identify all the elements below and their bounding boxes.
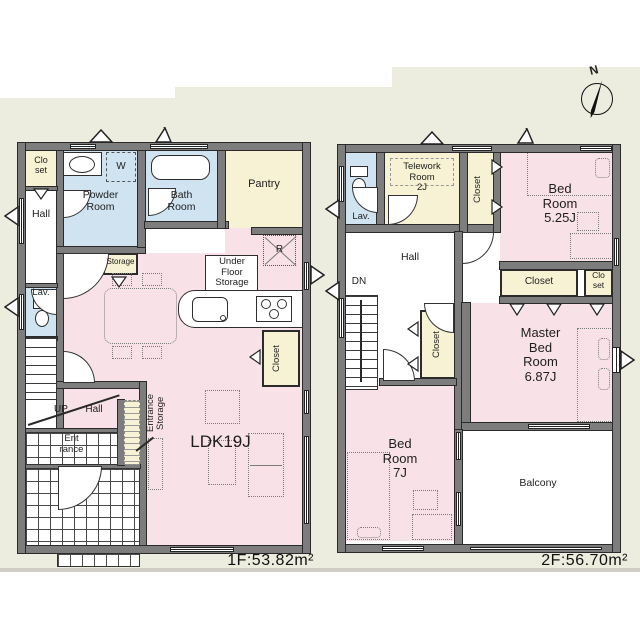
f1-bathtub — [151, 155, 210, 180]
floor-plan-page: { "colors": { "paper": "#ededdf", "wall"… — [0, 0, 640, 640]
f2-label-down: DN — [346, 276, 372, 287]
f2-label-closet-master-w: Closet — [432, 319, 442, 371]
f2-label-closet-master-n: Closet — [500, 276, 578, 287]
f2-toilet-tank — [350, 166, 368, 177]
f1-closet-east-door-icon — [248, 348, 262, 366]
f2-wall — [460, 152, 467, 232]
f1-label-closet-nw: Clo set — [25, 155, 57, 175]
f1-vent-icon — [152, 127, 174, 144]
f2-closet-door-icon — [508, 303, 526, 317]
f2-window — [452, 146, 492, 151]
f2-window — [614, 238, 619, 266]
f2-label-bedroom7: Bed Room 7J — [360, 437, 440, 481]
f2-wall — [377, 152, 384, 232]
f1-stairs — [25, 337, 57, 400]
f1-window — [304, 390, 309, 414]
f2-closet-door-icon — [490, 158, 504, 176]
f2-closet-door-icon — [545, 303, 563, 317]
f1-vent-icon — [309, 264, 325, 286]
f1-entrance-storage-shelf — [124, 400, 140, 465]
f1-vent-icon — [4, 205, 20, 227]
f2-window — [339, 166, 344, 202]
f1-dining-table — [104, 288, 177, 344]
f1-closet-door-icon — [32, 188, 50, 201]
paper-notch-mid — [175, 67, 392, 87]
f1-label-entrance-storage: Entrance Storage — [146, 378, 166, 448]
f2-vent-icon — [325, 280, 341, 302]
f1-burner — [269, 309, 279, 319]
f1-label-entrance: Ent rance — [25, 434, 118, 455]
f2-label-bedroom5: Bed Room 5.25J — [520, 182, 600, 226]
f2-label-closet-north: Closet — [473, 165, 483, 215]
f2-closet-door-icon — [406, 355, 420, 373]
f1-burner — [277, 299, 287, 309]
f1-vent-icon — [4, 296, 20, 318]
f2-label-hall: Hall — [380, 252, 440, 264]
f2-window — [382, 546, 424, 551]
f2-vent-icon — [619, 349, 635, 371]
f1-area-label: 1F:53.82m² — [150, 552, 314, 570]
f1-window — [304, 436, 309, 524]
f2-label-lav: Lav. — [345, 212, 377, 223]
f2-label-balcony: Balcony — [500, 478, 576, 490]
f2-wall — [455, 232, 462, 430]
f2-master-pillow — [598, 338, 610, 360]
f1-porch-step-tiles — [57, 553, 140, 567]
f1-sofa-split — [250, 465, 282, 466]
f1-label-up: UP — [48, 404, 74, 415]
f2-window — [456, 492, 461, 526]
f2-window — [456, 432, 461, 460]
f2-bed7-pillow — [357, 527, 381, 538]
f1-label-hall: Hall — [25, 209, 57, 221]
f2-label-closet-master-ne: Clo set — [584, 271, 613, 290]
f1-wall — [252, 228, 303, 234]
f1-vent-icon — [88, 129, 114, 144]
f2-balcony-door — [528, 424, 590, 429]
f2-closet-door-icon — [588, 303, 606, 317]
f1-label-under-floor: Under Floor Storage — [186, 257, 278, 289]
f2-wall — [345, 225, 497, 232]
paper-notch-left — [0, 67, 175, 98]
f1-label-storage: Storage — [103, 258, 138, 267]
f1-label-fridge: R — [263, 244, 296, 255]
f1-powder-sink-bowl — [69, 156, 95, 173]
f2-label-telework: Telework Room 2J — [384, 162, 460, 194]
f2-area-label: 2F:56.70m² — [464, 552, 628, 570]
f1-armchair — [205, 390, 240, 424]
f2-closet-door-icon — [406, 320, 420, 338]
f2-window — [339, 298, 344, 338]
f2-bed5-desk — [570, 233, 615, 259]
f1-label-hall-lower: Hall — [76, 404, 112, 415]
f1-wall — [138, 150, 145, 247]
f1-label-washer: W — [106, 161, 136, 172]
f1-chair — [112, 346, 132, 359]
f2-master-pillow — [598, 368, 610, 390]
f1-wall — [145, 222, 228, 228]
f1-label-pantry: Pantry — [225, 178, 303, 190]
f1-label-ldk: LDK19J — [173, 432, 268, 451]
f1-label-lav: Lav. — [25, 288, 57, 299]
f2-closet-door-icon — [490, 198, 504, 216]
f2-wall — [462, 303, 470, 423]
f1-label-closet-east: Closet — [272, 334, 282, 384]
f1-label-bath: Bath Room — [145, 190, 218, 214]
f2-vent-icon — [419, 131, 445, 146]
f1-sink-drain — [220, 315, 226, 321]
f1-storage-door-icon — [110, 276, 128, 289]
f2-label-master: Master Bed Room 6.87J — [483, 326, 598, 384]
f2-stairs-arrow — [360, 300, 362, 382]
f2-vent-icon — [325, 198, 341, 220]
f2-bed7-desk — [412, 514, 452, 540]
f2-balcony-rail — [470, 547, 602, 550]
f2-wall — [500, 262, 613, 269]
f1-window — [150, 144, 208, 149]
f2-window — [580, 146, 612, 151]
f2-stairs — [345, 295, 378, 390]
f1-window — [70, 144, 96, 149]
f2-bed7-chair — [413, 490, 438, 510]
f2-vent-icon — [514, 128, 536, 145]
f1-label-powder: Powder Room — [63, 190, 138, 214]
f2-bed5-pillow — [595, 158, 610, 178]
f1-burner — [261, 299, 271, 309]
f1-wall — [218, 150, 225, 228]
f1-chair — [142, 273, 162, 286]
f1-chair — [142, 346, 162, 359]
